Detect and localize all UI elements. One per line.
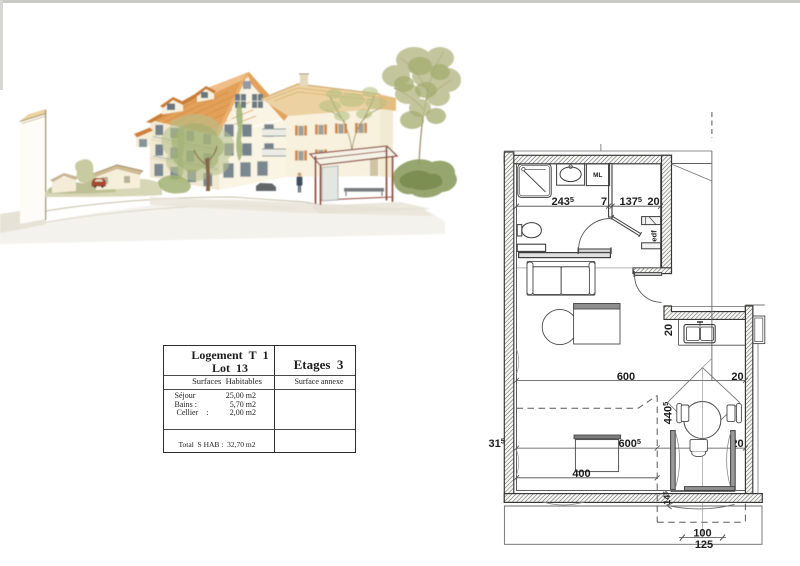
svg-text:20: 20: [647, 196, 659, 208]
svg-text:125: 125: [695, 539, 713, 551]
svg-text:315: 315: [489, 437, 505, 450]
svg-text:20: 20: [663, 324, 675, 336]
svg-text:7: 7: [601, 196, 607, 208]
svg-text:145: 145: [662, 491, 672, 505]
svg-text:ML: ML: [593, 172, 602, 179]
svg-text:4405: 4405: [661, 402, 674, 424]
svg-text:400: 400: [572, 468, 590, 480]
svg-text:600: 600: [617, 371, 635, 383]
svg-text:edf: edf: [649, 230, 658, 242]
svg-text:100: 100: [693, 527, 711, 539]
svg-text:20: 20: [731, 371, 743, 383]
